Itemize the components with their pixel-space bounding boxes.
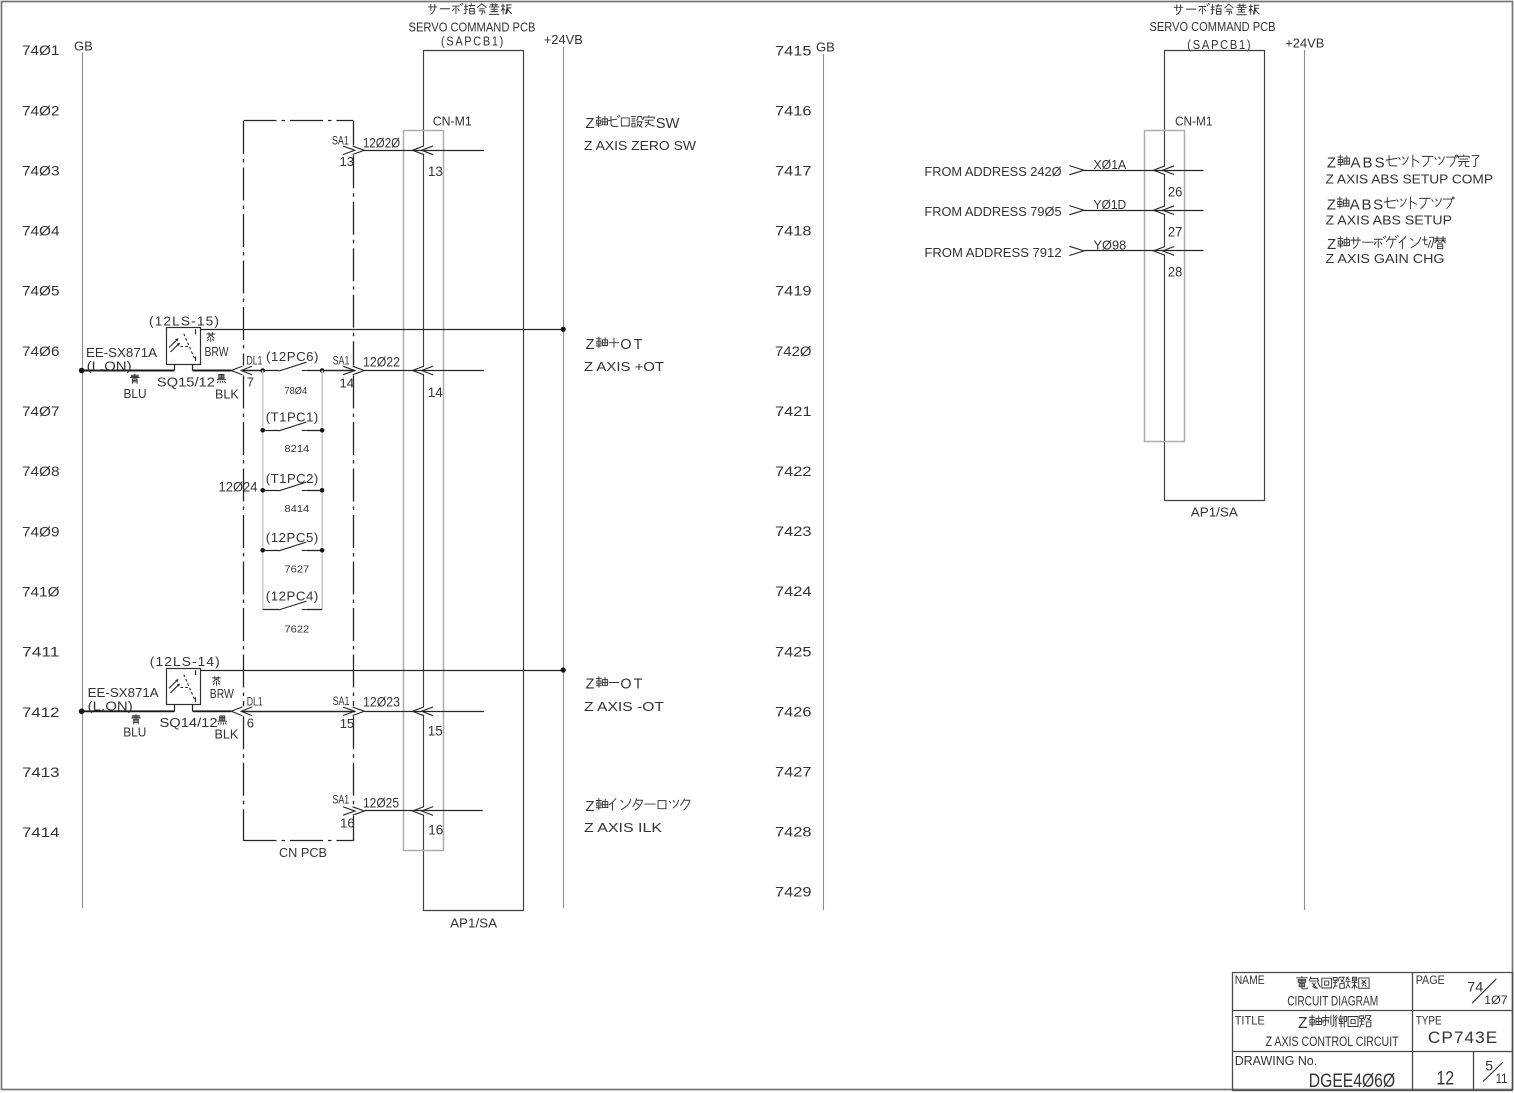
svg-text:Z: Z — [1298, 1015, 1307, 1032]
svg-text:(T1PC1): (T1PC1) — [266, 410, 319, 424]
svg-text:Z: Z — [586, 337, 595, 353]
svg-text:(SAPCB1): (SAPCB1) — [1187, 37, 1252, 52]
svg-text:EE-SX871A: EE-SX871A — [86, 346, 158, 360]
svg-text:7429: 7429 — [775, 885, 812, 901]
svg-text:74Ø6: 74Ø6 — [22, 344, 60, 360]
svg-text:13: 13 — [428, 164, 443, 179]
svg-text:74Ø1: 74Ø1 — [22, 43, 60, 59]
svg-text:742Ø: 742Ø — [775, 344, 812, 360]
svg-text:BRW: BRW — [210, 687, 234, 701]
svg-text:26: 26 — [1168, 185, 1182, 200]
svg-text:FROM ADDRESS 242Ø: FROM ADDRESS 242Ø — [924, 164, 1061, 179]
svg-text:DRAWING No.: DRAWING No. — [1235, 1054, 1318, 1068]
svg-text:SQ14/12: SQ14/12 — [160, 715, 218, 730]
svg-text:TITLE: TITLE — [1235, 1016, 1265, 1028]
svg-text:BLU: BLU — [123, 726, 146, 740]
svg-text:74Ø2: 74Ø2 — [22, 103, 60, 119]
svg-text:15: 15 — [340, 716, 354, 731]
svg-text:7423: 7423 — [775, 524, 812, 540]
svg-text:Z: Z — [585, 116, 594, 132]
svg-text:YØ98: YØ98 — [1094, 239, 1127, 253]
svg-text:7424: 7424 — [775, 584, 812, 600]
svg-text:W: W — [666, 116, 680, 132]
svg-text:BLK: BLK — [215, 728, 239, 742]
svg-text:(12PC5): (12PC5) — [266, 531, 319, 545]
svg-text:8414: 8414 — [284, 504, 310, 515]
svg-text:DGEE4Ø6Ø: DGEE4Ø6Ø — [1309, 1071, 1395, 1092]
svg-text:78Ø4: 78Ø4 — [285, 386, 308, 397]
svg-text:BLK: BLK — [215, 387, 239, 401]
svg-text:S: S — [1375, 154, 1385, 171]
svg-text:GB: GB — [74, 39, 93, 54]
svg-text:Z: Z — [1327, 196, 1336, 213]
svg-text:B: B — [1361, 196, 1371, 213]
svg-text:Z AXIS -OT: Z AXIS -OT — [584, 699, 664, 714]
svg-text:Z: Z — [586, 677, 595, 693]
svg-text:7416: 7416 — [775, 103, 812, 119]
svg-text:T: T — [634, 337, 643, 353]
svg-text:12Ø25: 12Ø25 — [363, 795, 399, 811]
svg-text:CIRCUIT DIAGRAM: CIRCUIT DIAGRAM — [1287, 994, 1378, 1009]
svg-text:27: 27 — [1168, 224, 1182, 239]
svg-text:16: 16 — [428, 823, 443, 838]
svg-text:XØ1A: XØ1A — [1094, 158, 1127, 172]
svg-text:AP1/SA: AP1/SA — [1191, 505, 1238, 520]
svg-text:SERVO COMMAND PCB: SERVO COMMAND PCB — [1150, 19, 1276, 34]
svg-text:7421: 7421 — [775, 404, 812, 420]
svg-text:A: A — [1351, 154, 1361, 171]
svg-text:O: O — [620, 337, 631, 353]
svg-text:74Ø5: 74Ø5 — [22, 284, 60, 300]
svg-text:+24VB: +24VB — [1285, 35, 1324, 50]
svg-text:12Ø2Ø: 12Ø2Ø — [363, 134, 400, 150]
svg-text:+24VB: +24VB — [544, 32, 583, 47]
svg-text:7426: 7426 — [775, 704, 812, 720]
svg-text:12Ø22: 12Ø22 — [363, 354, 400, 370]
svg-text:CN-M1: CN-M1 — [1175, 114, 1213, 129]
svg-text:6: 6 — [247, 716, 254, 731]
svg-text:74Ø3: 74Ø3 — [22, 163, 60, 179]
svg-text:(12PC4): (12PC4) — [266, 590, 319, 604]
svg-text:GB: GB — [816, 40, 835, 55]
svg-text:15: 15 — [428, 723, 443, 738]
svg-text:A: A — [1350, 196, 1360, 213]
svg-text:(SAPCB1): (SAPCB1) — [441, 33, 505, 48]
svg-text:(T1PC2): (T1PC2) — [266, 472, 319, 486]
svg-text:74Ø7: 74Ø7 — [22, 404, 60, 420]
svg-text:12Ø24: 12Ø24 — [219, 478, 258, 494]
svg-text:7419: 7419 — [775, 284, 812, 300]
svg-text:CN-M1: CN-M1 — [433, 113, 472, 128]
svg-text:Z AXIS ABS SETUP COMP: Z AXIS ABS SETUP COMP — [1326, 172, 1494, 187]
svg-text:SA1: SA1 — [333, 353, 350, 367]
svg-text:Z: Z — [1327, 154, 1336, 171]
svg-text:7425: 7425 — [775, 644, 812, 660]
svg-text:(L.ON): (L.ON) — [87, 359, 132, 373]
svg-text:7: 7 — [247, 374, 254, 389]
svg-text:SA1: SA1 — [332, 133, 349, 147]
svg-text:T: T — [634, 677, 643, 693]
svg-text:Z AXIS CONTROL CIRCUIT: Z AXIS CONTROL CIRCUIT — [1266, 1034, 1399, 1049]
svg-text:YØ1D: YØ1D — [1094, 198, 1127, 212]
svg-text:7418: 7418 — [775, 224, 812, 240]
svg-text:74Ø9: 74Ø9 — [22, 524, 60, 540]
svg-text:O: O — [620, 677, 631, 693]
svg-text:CN PCB: CN PCB — [279, 845, 327, 860]
svg-text:74: 74 — [1467, 979, 1483, 995]
svg-text:B: B — [1363, 154, 1373, 171]
svg-text:14: 14 — [428, 385, 444, 400]
svg-text:SA1: SA1 — [333, 694, 350, 708]
svg-text:7428: 7428 — [775, 825, 812, 841]
svg-text:SERVO COMMAND PCB: SERVO COMMAND PCB — [409, 19, 536, 34]
svg-text:7422: 7422 — [775, 464, 812, 480]
svg-text:Z AXIS ILK: Z AXIS ILK — [584, 820, 662, 835]
svg-text:FROM ADDRESS 79Ø5: FROM ADDRESS 79Ø5 — [924, 204, 1061, 219]
svg-text:7414: 7414 — [22, 825, 60, 841]
svg-text:741Ø: 741Ø — [22, 584, 60, 600]
svg-text:DL1: DL1 — [246, 355, 262, 367]
svg-text:FROM ADDRESS 7912: FROM ADDRESS 7912 — [924, 245, 1061, 260]
svg-text:5: 5 — [1485, 1058, 1493, 1074]
svg-text:(12LS-14): (12LS-14) — [150, 655, 221, 669]
svg-text:Z AXIS ABS SETUP: Z AXIS ABS SETUP — [1326, 213, 1453, 228]
svg-text:11: 11 — [1496, 1070, 1508, 1086]
svg-text:(L.ON): (L.ON) — [88, 699, 133, 713]
svg-text:7415: 7415 — [775, 43, 812, 59]
svg-text:7412: 7412 — [22, 705, 60, 721]
svg-text:BRW: BRW — [205, 345, 229, 359]
svg-text:SA1: SA1 — [332, 792, 349, 806]
svg-text:12: 12 — [1436, 1068, 1454, 1089]
svg-text:16: 16 — [340, 815, 354, 830]
svg-text:S: S — [1373, 196, 1383, 213]
svg-text:74Ø8: 74Ø8 — [22, 464, 60, 480]
svg-text:7627: 7627 — [284, 564, 309, 575]
svg-text:AP1/SA: AP1/SA — [450, 916, 497, 931]
svg-text:12Ø23: 12Ø23 — [363, 693, 400, 709]
svg-text:NAME: NAME — [1235, 975, 1265, 987]
svg-text:74Ø4: 74Ø4 — [22, 224, 60, 240]
svg-text:EE-SX871A: EE-SX871A — [88, 686, 160, 700]
svg-text:Z AXIS +OT: Z AXIS +OT — [584, 359, 664, 374]
svg-text:TYPE: TYPE — [1416, 1016, 1442, 1028]
svg-text:(12PC6): (12PC6) — [266, 350, 319, 364]
svg-text:DL1: DL1 — [247, 697, 263, 709]
svg-text:1Ø7: 1Ø7 — [1484, 993, 1508, 1007]
svg-text:Z AXIS ZERO SW: Z AXIS ZERO SW — [584, 138, 697, 153]
svg-text:7413: 7413 — [22, 765, 60, 781]
svg-text:7417: 7417 — [775, 164, 812, 180]
svg-text:Z: Z — [585, 799, 594, 815]
svg-text:28: 28 — [1168, 265, 1182, 280]
svg-text:7427: 7427 — [775, 765, 812, 781]
svg-text:PAGE: PAGE — [1416, 975, 1445, 987]
svg-text:(12LS-15): (12LS-15) — [149, 315, 220, 329]
svg-text:BLU: BLU — [124, 387, 147, 401]
svg-text:8214: 8214 — [284, 444, 310, 455]
svg-text:CP743E: CP743E — [1428, 1028, 1498, 1047]
svg-text:S: S — [656, 116, 666, 132]
svg-text:7622: 7622 — [284, 624, 309, 635]
svg-text:14: 14 — [340, 375, 354, 390]
svg-text:Z AXIS GAIN CHG: Z AXIS GAIN CHG — [1326, 251, 1445, 266]
svg-text:7411: 7411 — [22, 645, 60, 661]
svg-text:SQ15/12: SQ15/12 — [157, 375, 215, 390]
svg-text:13: 13 — [340, 154, 354, 169]
